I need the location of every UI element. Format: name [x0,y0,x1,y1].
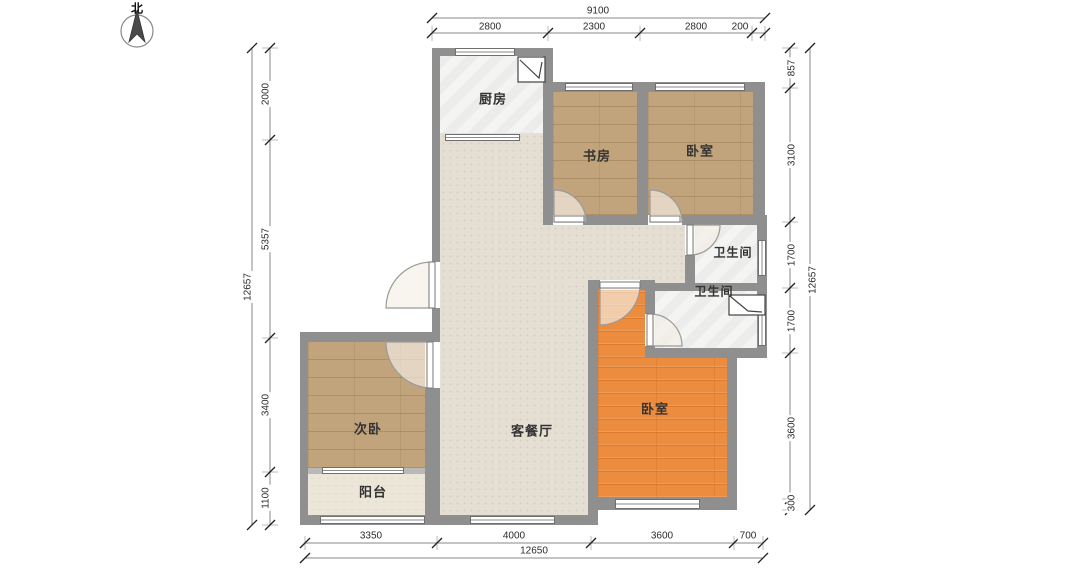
dim-label: 4000 [501,531,527,542]
dim-label: 3100 [787,142,798,168]
dim-label: 3600 [649,531,675,542]
dim-label: 2800 [477,22,503,33]
bedroom-main-floor-ext [598,290,645,358]
bedroom-main-floor [598,358,727,498]
study-label: 书房 [583,146,611,165]
floor-plan: 厨房 书房 卧室 卫生间 卫生间 卧室 次卧 客餐厅 阳台 北 9100 280… [0,0,1074,576]
wall [645,348,767,358]
wall [300,332,308,525]
dim-label: 857 [787,58,798,79]
window [615,499,700,509]
second-bedroom-label: 次卧 [354,419,382,438]
door-opening [600,280,640,290]
dim-label: 2000 [261,81,272,107]
kitchen-label: 厨房 [479,89,507,108]
dim-label: 3400 [261,392,272,418]
dim-label: 300 [787,493,798,514]
bathroom-upper-label: 卫生间 [713,244,752,261]
window [565,83,633,91]
dim-label: 2300 [581,22,607,33]
window [455,48,515,56]
living-floor-a [440,133,543,225]
wall [753,82,765,222]
wall [425,388,440,472]
living-dining-label: 客餐厅 [511,421,553,440]
second-bedroom-floor [308,342,425,468]
window [470,516,555,524]
door-opening [645,314,655,346]
dim-label: 2800 [683,22,709,33]
door-opening [648,215,682,225]
window [322,467,404,474]
dim-label: 12650 [518,546,550,557]
balcony-label: 阳台 [359,482,387,501]
bedroom-top-label: 卧室 [686,141,714,160]
door-opening [425,342,440,388]
window [320,516,425,524]
window [655,83,745,91]
dim-label: 3600 [787,415,798,441]
wall [645,346,655,358]
door-opening [685,225,695,255]
bedroom-main-label: 卧室 [641,399,669,418]
wall [637,92,648,215]
wall [543,48,553,225]
door-opening [432,262,440,308]
wall [432,308,440,332]
wall [432,48,440,262]
living-floor-main [440,283,588,515]
wall [727,348,737,510]
dim-label: 1700 [787,308,798,334]
wall [425,472,440,515]
north-label: 北 [131,0,143,17]
dim-label: 1700 [787,242,798,268]
living-floor-corridor [440,225,685,283]
dim-label: 200 [730,22,751,33]
wall [640,280,655,290]
dim-label: 9100 [585,6,611,17]
wall [588,280,598,510]
window [445,134,520,141]
dim-label: 12657 [243,271,254,303]
bathroom-lower-floor [655,291,757,348]
window [758,240,766,276]
dim-label: 5357 [261,226,272,252]
dim-label: 3350 [358,531,384,542]
dim-label: 700 [738,531,759,542]
dim-label: 1100 [261,485,272,511]
window [758,312,766,346]
wall [300,332,440,342]
bathroom-lower-label: 卫生间 [694,283,733,300]
dim-label: 12657 [808,264,819,296]
door-opening [553,215,583,225]
